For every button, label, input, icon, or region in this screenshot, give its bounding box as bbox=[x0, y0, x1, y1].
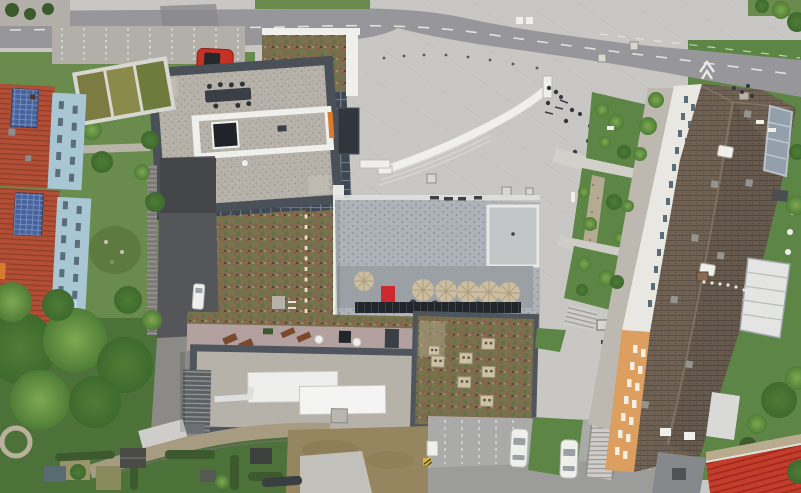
parasol bbox=[457, 281, 479, 303]
roof-vent-white bbox=[660, 428, 671, 436]
lower-east-annex bbox=[706, 392, 740, 440]
roof-vent-box bbox=[331, 409, 347, 423]
tree bbox=[639, 117, 657, 135]
orange-awning bbox=[0, 263, 6, 279]
tree bbox=[747, 414, 767, 434]
red-roof-house-north bbox=[0, 84, 87, 191]
parasol bbox=[478, 281, 500, 303]
building-shadow bbox=[335, 200, 340, 318]
terrace-planter bbox=[263, 328, 273, 334]
plaza-skylight-box bbox=[338, 108, 359, 154]
road-median-grass bbox=[255, 0, 370, 9]
blue-facade bbox=[47, 93, 86, 191]
roof-drain bbox=[511, 232, 515, 236]
concrete-pad bbox=[300, 451, 372, 493]
ramp-upper-dark bbox=[160, 158, 216, 213]
garden-shed bbox=[200, 470, 216, 482]
dark-shed bbox=[771, 189, 788, 202]
lawn-bench bbox=[756, 120, 764, 124]
tree bbox=[595, 103, 609, 117]
bush bbox=[91, 151, 113, 173]
equipment-box bbox=[339, 331, 351, 343]
sedum-roof-pad bbox=[272, 296, 285, 309]
aerial-photo-root bbox=[0, 0, 801, 493]
tree bbox=[606, 194, 622, 210]
flower-garden bbox=[89, 226, 141, 274]
roof-skylight bbox=[212, 122, 239, 149]
tree bbox=[142, 310, 162, 330]
plaza-bench bbox=[360, 160, 390, 168]
bush bbox=[134, 164, 150, 180]
white-car bbox=[560, 440, 578, 479]
tree bbox=[633, 147, 647, 161]
lawn-table bbox=[785, 249, 791, 255]
garden-shed bbox=[44, 466, 66, 482]
parasol bbox=[412, 279, 434, 301]
roof-vent-white bbox=[684, 432, 695, 440]
hedge-bush bbox=[42, 3, 54, 15]
middle-building bbox=[335, 195, 540, 330]
roof-vent bbox=[277, 125, 286, 132]
stair-landing bbox=[185, 424, 205, 434]
tree bbox=[114, 286, 142, 314]
parasol bbox=[435, 280, 457, 302]
flat-roof-annex bbox=[652, 452, 706, 493]
parasol bbox=[354, 271, 374, 291]
white-car bbox=[510, 429, 529, 468]
garden-shed bbox=[120, 448, 146, 468]
roof-dormer bbox=[717, 145, 734, 158]
plaza-bench-box bbox=[516, 17, 523, 24]
hedge-row bbox=[230, 455, 239, 490]
east-balcony-block bbox=[764, 106, 792, 176]
annex-vent bbox=[672, 468, 686, 480]
dome-vent bbox=[315, 335, 323, 343]
garden-shed bbox=[250, 448, 272, 464]
tree bbox=[772, 1, 790, 19]
aerial-photo bbox=[0, 0, 801, 493]
tree bbox=[610, 275, 624, 289]
roof-parapet bbox=[262, 28, 360, 35]
tree bbox=[578, 186, 590, 198]
large-sedum-roof bbox=[413, 313, 537, 429]
tree bbox=[576, 284, 588, 296]
lawn-table bbox=[787, 229, 793, 235]
courtyard-building bbox=[182, 312, 434, 439]
brick-chimney bbox=[697, 272, 708, 281]
plaza-bench-box bbox=[526, 17, 533, 24]
roof-paver-patch bbox=[308, 174, 329, 194]
tree bbox=[583, 217, 597, 231]
asphalt-repair-patch bbox=[160, 4, 219, 29]
lawn-bench bbox=[607, 126, 614, 130]
chimney bbox=[30, 94, 35, 99]
hedge-row bbox=[165, 450, 215, 459]
tree bbox=[648, 92, 664, 108]
garden-bench bbox=[571, 192, 575, 202]
tree bbox=[599, 136, 611, 148]
roof-window bbox=[8, 128, 15, 135]
dome-vent bbox=[353, 338, 361, 346]
light-roof-panel bbox=[488, 206, 538, 266]
hedge-bush bbox=[24, 8, 36, 20]
roof-parapet bbox=[346, 28, 358, 96]
tree bbox=[577, 257, 591, 271]
hedge-bush bbox=[5, 3, 19, 17]
tree bbox=[70, 464, 86, 480]
bush bbox=[141, 131, 159, 149]
lawn-bench bbox=[768, 128, 776, 132]
bush bbox=[145, 192, 165, 212]
parasol bbox=[498, 282, 520, 304]
soil-mottle bbox=[366, 451, 414, 469]
tree bbox=[215, 475, 229, 489]
red-terrace-element bbox=[381, 286, 395, 303]
roof-window bbox=[25, 155, 31, 161]
building-shadow bbox=[180, 352, 185, 432]
tree bbox=[622, 200, 634, 212]
tree bbox=[617, 145, 631, 159]
white-van bbox=[192, 284, 205, 310]
equipment-box bbox=[385, 329, 399, 348]
